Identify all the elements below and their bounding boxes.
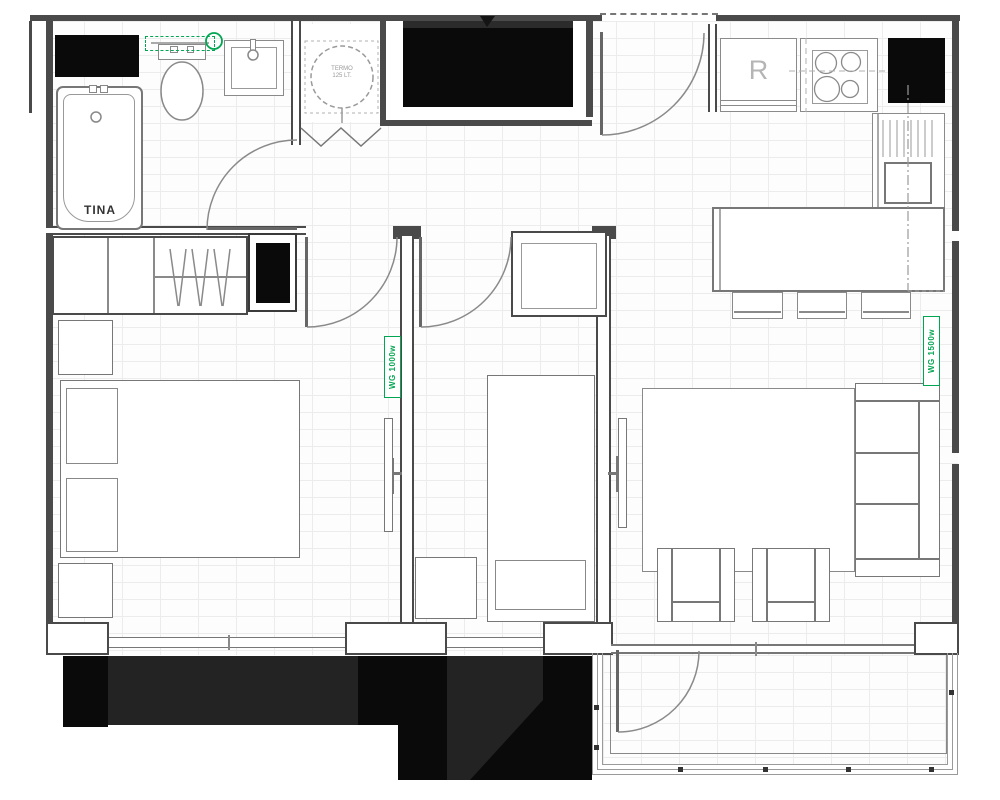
wall-right-seg1 [952,21,959,231]
wall-heater-label-right: WG 1500w [923,316,940,386]
armchair-2-arm-left [766,549,768,621]
bedroom1-nightstand-bottom [58,563,113,618]
bedroom2-pillow [495,560,586,610]
wall-block-south-2 [543,622,613,655]
balcony-door-leaf [616,650,619,732]
slab-fill-gray-1 [108,656,358,725]
balcony-post-3 [846,767,851,772]
bar-stool-3-seat [863,311,909,313]
wall-bathroom-east [291,21,301,145]
wall-entry-kitchen-stub [708,24,717,112]
bedroom1-tv-bracket [392,458,394,494]
bedroom2-closet-inner [521,243,597,309]
armchair-2-seat [768,601,814,603]
entry-door-leaf [600,32,603,135]
wall-block-se-corner [914,622,959,655]
slab-fill-black-3 [398,725,447,780]
kitchen-island [712,207,945,292]
water-heater-label: TERMO 125 LT. [316,66,368,80]
towel-bar [151,42,209,44]
bathtub-label: TINA [58,203,142,217]
wall-block-sw-corner [46,622,109,655]
water-heater-label-line2: 125 LT. [316,73,368,80]
sofa [855,383,940,577]
refrigerator-handle [720,100,797,106]
sofa-armrest-bottom [855,558,940,560]
wall-between-bedrooms [400,236,414,626]
balcony-post-2 [763,767,768,772]
bar-stool-1 [732,292,783,319]
sofa-cushion-line-2 [855,503,919,505]
bar-stool-3 [861,292,911,319]
refrigerator-label: R [720,55,797,86]
wall-alcove-right [586,21,593,117]
closet-divider-1 [107,238,109,313]
floor-plan: TINA TERMO 125 LT. R [0,0,1000,800]
wall-alcove-bottom [380,120,592,126]
bathroom-window-mass [55,35,139,77]
wall-alcove-left [380,21,386,126]
living-rug [642,388,855,572]
armchair-1-arm-right [719,549,721,621]
sink-faucet-stem [250,39,256,51]
wall-left-outer-thin [29,21,32,113]
bar-stool-2-seat [799,311,845,313]
balcony-post-1 [678,767,683,772]
kitchen-counter-edge [877,114,879,207]
balcony-post-7 [949,690,954,695]
window-tick-1 [228,635,230,650]
slab-fill-black-1 [63,656,108,727]
wall-top-left [30,15,602,21]
living-tv-arm [608,472,618,475]
wall-left-main [46,21,53,655]
kitchen-sink [884,162,932,204]
balcony-post-4 [929,767,934,772]
kitchen-window-mass [888,38,945,103]
bar-stool-1-seat [734,311,781,313]
closet-cabinet-fill [256,243,290,303]
bathtub-faucet-handle-right [100,85,108,93]
armchair-2 [752,548,830,622]
balcony-post-5 [594,705,599,710]
armchair-2-arm-right [814,549,816,621]
bedroom1-tv-arm [392,472,402,475]
slab-fill-black-4 [447,656,592,780]
bedroom1-nightstand-top [58,320,113,375]
wall-block-south-1 [345,622,447,655]
bedroom1-pillow-1 [66,388,118,464]
wall-top-right [716,15,960,21]
stove-burner-box [812,50,868,104]
sofa-backrest [918,401,920,558]
armchair-1-arm-left [671,549,673,621]
bedroom2-window [447,637,543,648]
kitchen-island-edge [719,209,721,290]
living-tv [618,418,627,528]
armchair-1 [657,548,735,622]
bedroom1-pillow-2 [66,478,118,552]
bedroom1-door-leaf [305,237,308,327]
balcony-inner-edge [610,655,947,754]
slab-fill-black-2 [358,656,447,725]
bathroom-door-leaf [207,227,297,230]
bedroom2-door-leaf [419,237,422,327]
bar-stool-2 [797,292,847,319]
armchair-1-seat [673,601,719,603]
bathtub-faucet-handle-left [89,85,97,93]
wall-right-seg2 [952,241,959,453]
water-heater-label-line1: TERMO [316,66,368,73]
sofa-armrest-top [855,400,940,402]
closet-hanger-rod [155,276,246,278]
entry-threshold-dashed [600,13,718,19]
entry-wardrobe-mass [403,28,573,107]
bedroom1-window [109,637,345,648]
bedroom2-nightstand [415,557,477,619]
balcony-post-6 [594,745,599,750]
bathroom-sink-basin [231,47,277,89]
wall-heater-label-left: WG 1000w [384,336,401,398]
sofa-cushion-line-1 [855,452,919,454]
